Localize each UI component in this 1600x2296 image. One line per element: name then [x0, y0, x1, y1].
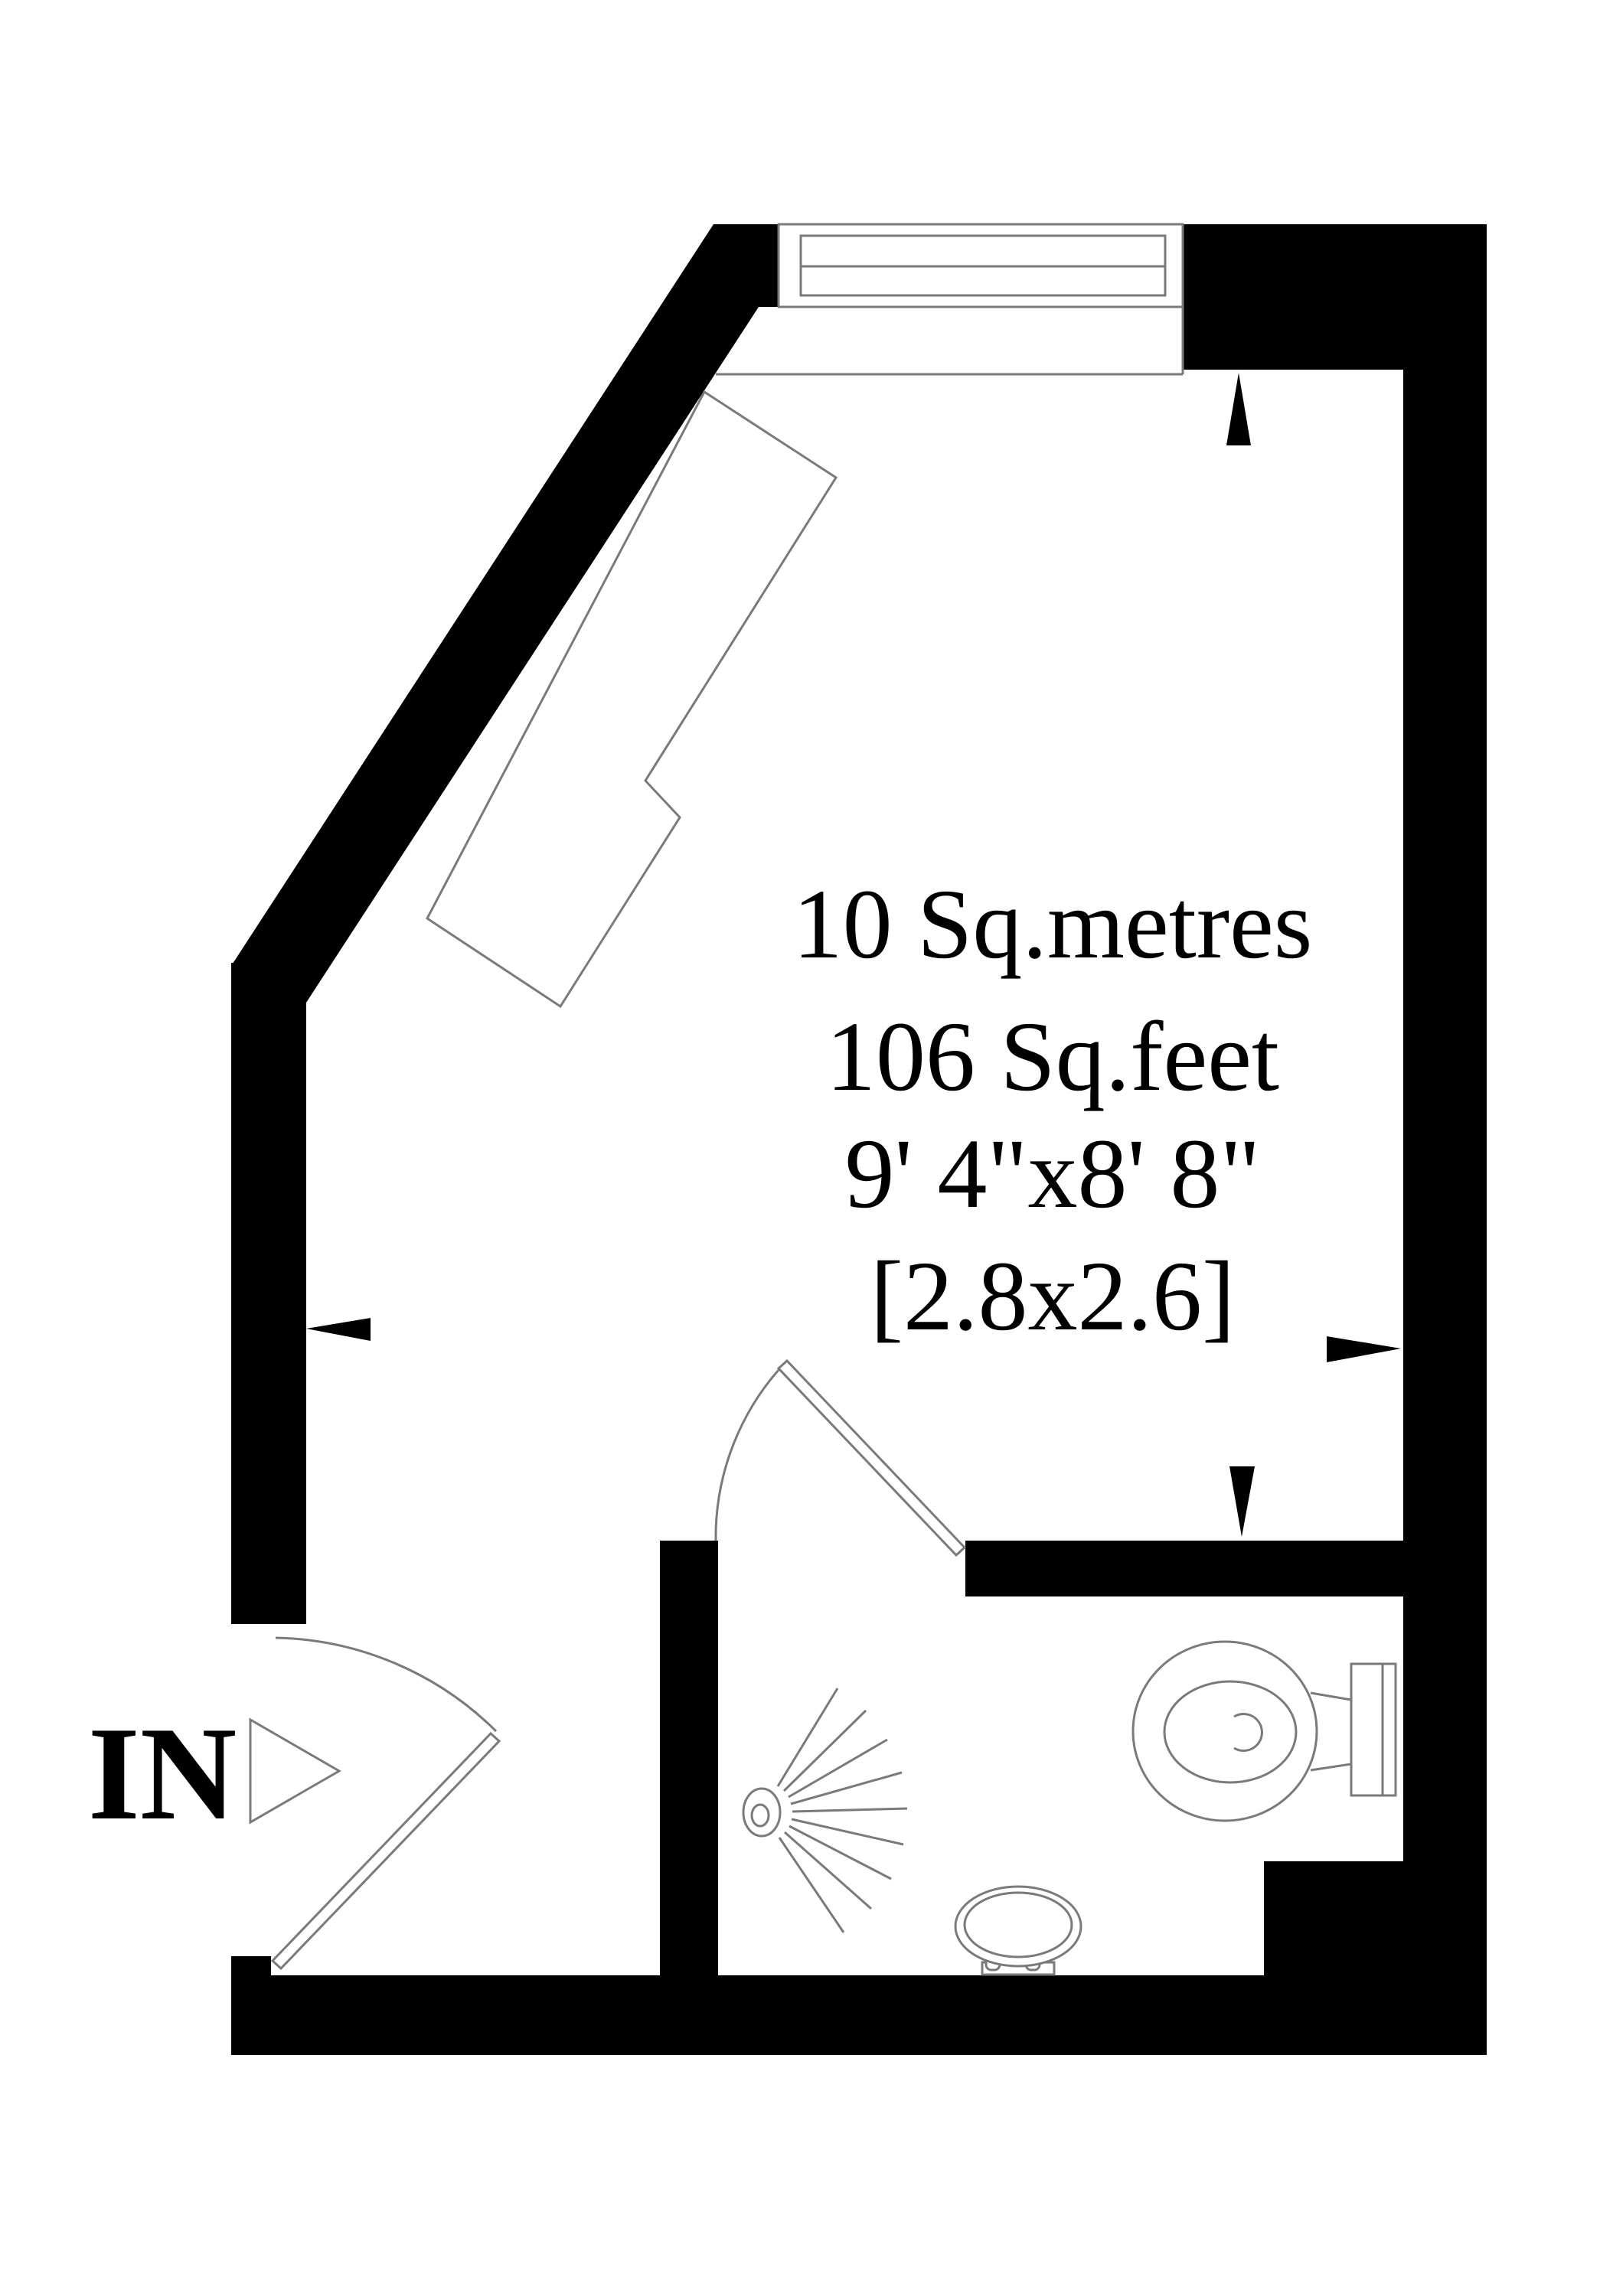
toilet-cistern — [1351, 1664, 1396, 1795]
arrow-down-icon — [1229, 1466, 1255, 1537]
arrow-left-icon — [306, 1318, 371, 1341]
entry-marker: IN — [88, 1699, 339, 1848]
wall-left — [231, 963, 306, 1624]
entry-direction-icon — [250, 1720, 339, 1822]
floor-plan-drawing: IN — [0, 0, 1600, 2296]
toilet-bowl-outer — [1133, 1642, 1317, 1821]
bathroom-door-leaf — [779, 1361, 965, 1555]
entry-label: IN — [88, 1699, 237, 1848]
bathroom-door-swing-arc — [716, 1361, 787, 1541]
wall-right — [1403, 370, 1487, 2055]
toilet — [1133, 1642, 1396, 1821]
shower-head-inner — [752, 1805, 769, 1826]
entry-door — [273, 1638, 499, 1968]
wall-top-right-block — [1183, 224, 1487, 370]
entry-door-swing-arc — [276, 1638, 496, 1731]
arrow-up-icon — [1226, 373, 1251, 445]
wall-bathroom-top — [965, 1541, 1403, 1596]
shower — [743, 1688, 907, 1932]
shower-spray-lines — [778, 1688, 907, 1932]
window — [716, 224, 1183, 374]
area-imperial-text: 106 Sq.feet — [826, 1002, 1279, 1112]
sink — [955, 1887, 1081, 1975]
shower-head-icon — [743, 1789, 780, 1836]
dimensions-metric-text: [2.8x2.6] — [870, 1241, 1236, 1352]
area-label: 10 Sq.metres 106 Sq.feet 9' 4"x8' 8" [2.… — [793, 869, 1313, 1352]
wall-bathroom-left — [660, 1541, 718, 1975]
bathroom-door — [716, 1361, 965, 1555]
dimensions-imperial-text: 9' 4"x8' 8" — [845, 1119, 1261, 1229]
sink-basin-outer — [955, 1887, 1081, 1966]
wall-bottom — [231, 1975, 1487, 2055]
wall-bathroom-step — [1264, 1861, 1403, 1975]
area-metric-text: 10 Sq.metres — [793, 869, 1313, 980]
arrow-right-icon — [1327, 1336, 1401, 1362]
floor-plan-page: IN — [0, 0, 1600, 2296]
